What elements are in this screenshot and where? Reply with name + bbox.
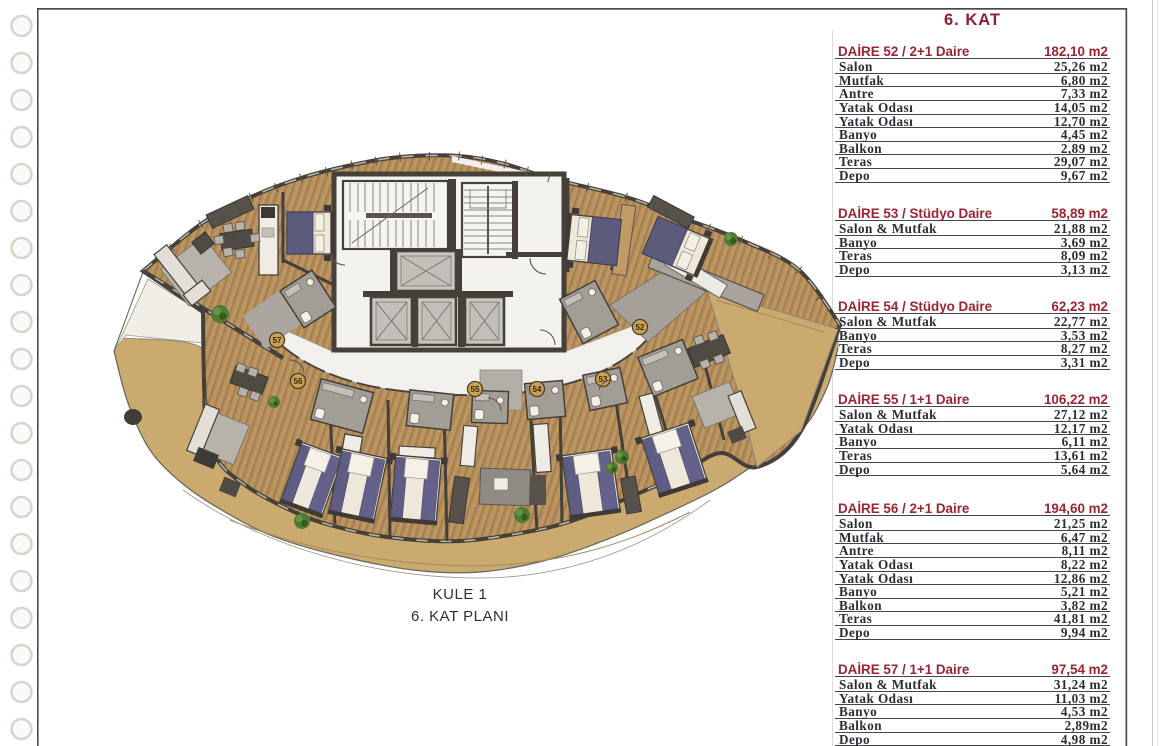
svg-text:54: 54 [533, 385, 542, 394]
svg-text:56: 56 [294, 377, 303, 386]
svg-text:57: 57 [273, 336, 282, 345]
svg-text:55: 55 [471, 385, 480, 394]
svg-text:52: 52 [636, 323, 645, 332]
